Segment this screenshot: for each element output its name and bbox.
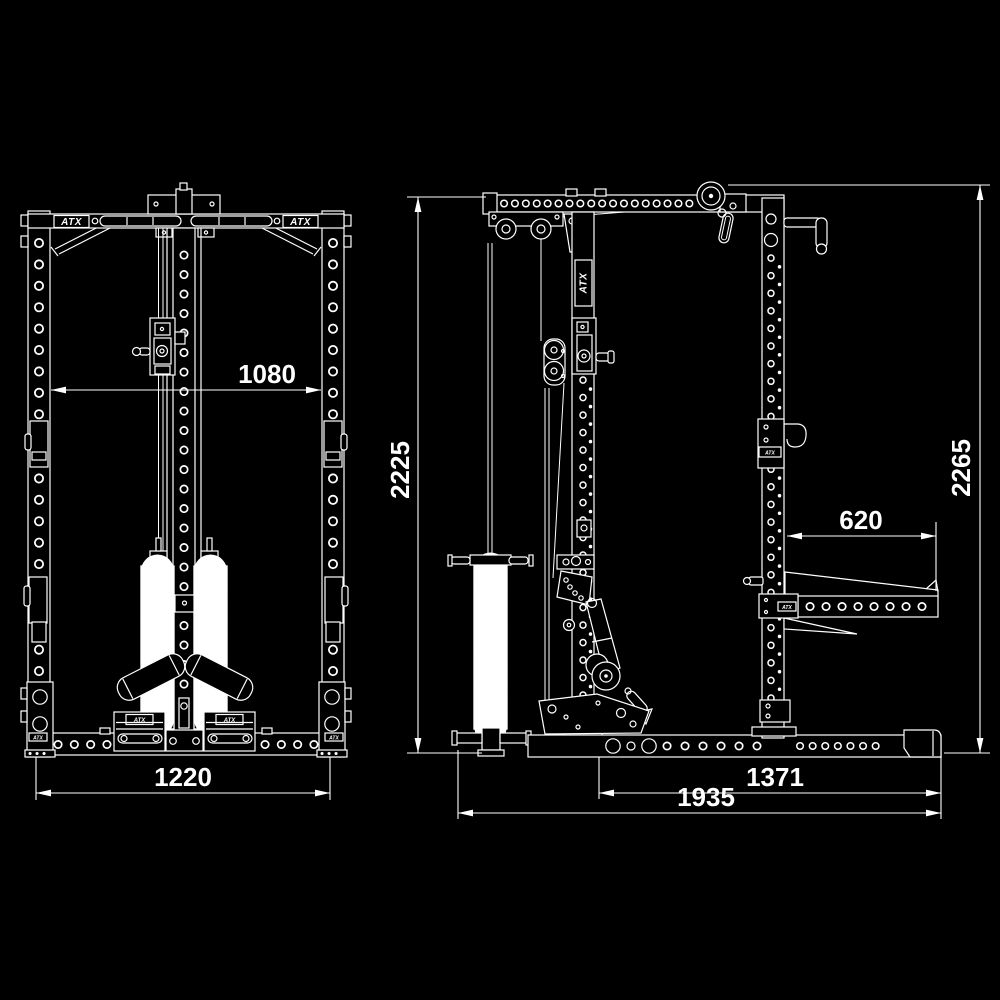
brand-logo-front-right: ATX — [289, 217, 312, 228]
brand-logo-tray-right: ATX — [223, 718, 237, 724]
front-top-beam: ATX ATX — [28, 214, 344, 228]
dimension-label-overall-height: 2265 — [946, 439, 976, 497]
dimension-label-safety-arm: 620 — [839, 505, 882, 535]
dimension-label-inner-width: 1080 — [238, 359, 296, 389]
brand-logo-front-left: ATX — [60, 217, 83, 228]
dimension-label-overall-depth: 1935 — [677, 782, 735, 812]
brand-logo-spotter: ATX — [781, 605, 792, 611]
tray-left: ATX — [114, 712, 165, 751]
dimension-label-front-height: 2225 — [385, 441, 415, 499]
brand-logo-foot-right: ATX — [328, 736, 339, 742]
technical-drawing: ATX ATX — [0, 0, 1000, 1000]
brand-logo-tray-left: ATX — [133, 718, 147, 724]
background — [0, 0, 1000, 1000]
dimension-label-overall-width: 1220 — [154, 762, 212, 792]
brand-logo-side-post: ATX — [579, 272, 590, 295]
rack-dimension-diagram: ATX ATX — [0, 0, 1000, 1000]
tray-right: ATX — [204, 712, 255, 751]
brand-logo-foot-left: ATX — [32, 736, 43, 742]
brand-logo-jhook: ATX — [764, 451, 775, 457]
dimension-label-rack-depth: 1371 — [746, 762, 804, 792]
